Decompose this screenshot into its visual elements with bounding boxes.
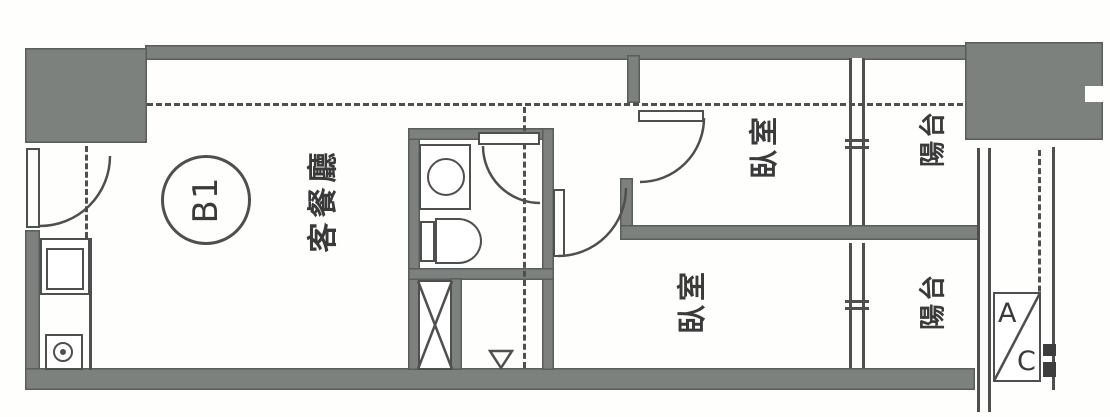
bedroom2-door-arc bbox=[558, 188, 626, 256]
pipe-shaft-box bbox=[418, 280, 452, 370]
room-label-bedroom-top: 臥室 bbox=[741, 113, 783, 179]
wall-bedroom1-stub-top bbox=[627, 55, 640, 103]
wall-block-top-left bbox=[25, 48, 147, 143]
wall-notch bbox=[1085, 86, 1105, 102]
kitchen-counter-inner bbox=[46, 248, 84, 290]
right-edge-mark-lower bbox=[1043, 362, 1056, 377]
bathroom-door-arc bbox=[483, 146, 540, 203]
washer-stove-dot bbox=[60, 349, 66, 355]
wall-bedroom1-stub-bottom bbox=[620, 178, 633, 228]
sink-basin bbox=[427, 158, 465, 196]
toilet-bowl bbox=[435, 218, 482, 264]
ac-letter-a: A bbox=[998, 300, 1016, 327]
dashed-line-entry bbox=[85, 146, 88, 238]
dashed-line-horizontal bbox=[147, 103, 963, 106]
window-tick bbox=[845, 146, 869, 149]
right-edge-mark-upper bbox=[1043, 344, 1056, 356]
bedroom2-balcony-window bbox=[849, 243, 865, 368]
entry-door-arc bbox=[40, 156, 110, 226]
ac-letter-c: C bbox=[1017, 348, 1036, 375]
room-label-bedroom-bottom: 臥室 bbox=[669, 268, 711, 334]
wall-left bbox=[25, 230, 40, 390]
toilet-tank bbox=[420, 221, 435, 262]
window-tick bbox=[845, 300, 869, 303]
bathroom-door-leaf bbox=[478, 132, 540, 145]
dashed-line-loft-boundary bbox=[523, 107, 526, 368]
window-tick bbox=[845, 307, 869, 310]
wall-bottom bbox=[25, 368, 975, 390]
room-label-living-dining: 客餐廳 bbox=[298, 148, 342, 253]
balcony-right-wall bbox=[977, 148, 991, 412]
wall-bedroom-divider bbox=[620, 225, 990, 240]
shower-drain-triangle bbox=[490, 351, 512, 368]
floor-plan: A C B1 客餐廳 臥室 臥室 陽台 陽台 bbox=[0, 0, 1110, 417]
unit-badge-label: B1 bbox=[186, 177, 226, 224]
entry-door-leaf bbox=[26, 148, 40, 228]
bedroom1-door-arc bbox=[640, 118, 704, 182]
bedroom2-door-leaf bbox=[553, 189, 565, 257]
room-label-balcony-bottom: 陽台 bbox=[913, 272, 950, 330]
bedroom1-door-leaf bbox=[638, 110, 704, 122]
window-tick bbox=[845, 139, 869, 142]
room-label-balcony-top: 陽台 bbox=[913, 109, 950, 167]
wall-block-top-right bbox=[965, 42, 1103, 140]
wall-bathroom-bottom bbox=[408, 268, 554, 280]
